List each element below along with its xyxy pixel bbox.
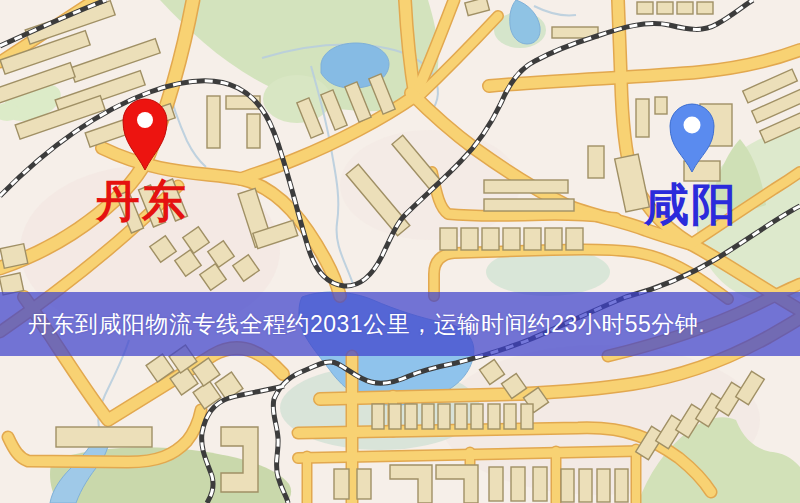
destination-pin-hole	[684, 117, 701, 134]
route-banner: 丹东到咸阳物流专线全程约2031公里，运输时间约23小时55分钟.	[0, 292, 800, 356]
map-svg: 丹东 咸阳	[0, 0, 800, 503]
map-canvas[interactable]: 丹东 咸阳 丹东到咸阳物流专线全程约2031公里，运输时间约23小时55分钟.	[0, 0, 800, 503]
origin-label: 丹东	[95, 176, 188, 225]
route-banner-text: 丹东到咸阳物流专线全程约2031公里，运输时间约23小时55分钟.	[28, 309, 705, 340]
destination-label: 咸阳	[643, 179, 738, 230]
origin-pin-hole	[137, 112, 153, 128]
